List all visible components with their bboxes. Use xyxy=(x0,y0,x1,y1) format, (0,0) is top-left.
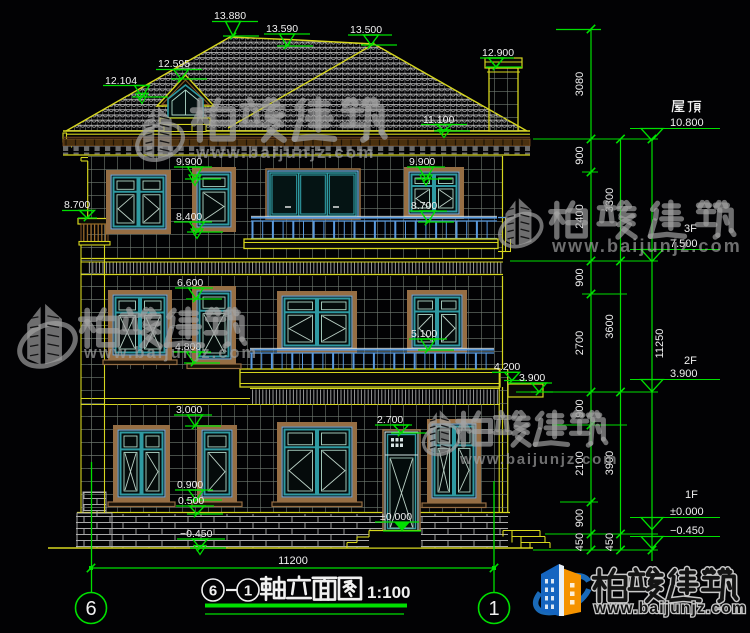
svg-text:5.100: 5.100 xyxy=(411,328,437,340)
svg-text:10.800: 10.800 xyxy=(670,117,704,129)
svg-text:−0.450: −0.450 xyxy=(670,525,704,537)
svg-text:450: 450 xyxy=(604,533,616,551)
svg-text:3.900: 3.900 xyxy=(670,368,698,380)
svg-text:6.600: 6.600 xyxy=(177,277,203,289)
svg-text:900: 900 xyxy=(574,509,586,527)
svg-text:13.590: 13.590 xyxy=(266,23,298,35)
svg-text:6: 6 xyxy=(85,598,96,620)
svg-text:13.880: 13.880 xyxy=(214,10,246,22)
svg-text:3080: 3080 xyxy=(574,72,586,96)
svg-text:11200: 11200 xyxy=(278,555,308,567)
svg-text:3.000: 3.000 xyxy=(176,404,202,416)
svg-text:12.595: 12.595 xyxy=(158,58,190,70)
svg-text:2.700: 2.700 xyxy=(377,414,403,426)
svg-text:8.700: 8.700 xyxy=(64,199,90,211)
svg-text:3600: 3600 xyxy=(604,314,616,338)
svg-text:1F: 1F xyxy=(685,489,698,501)
svg-text:900: 900 xyxy=(574,146,586,164)
svg-text:3.900: 3.900 xyxy=(519,372,545,384)
svg-text:450: 450 xyxy=(574,533,586,551)
svg-text:www.baijunjz.com: www.baijunjz.com xyxy=(195,143,375,162)
svg-text:1: 1 xyxy=(488,598,499,620)
svg-text:0.500: 0.500 xyxy=(178,495,204,507)
svg-text:1: 1 xyxy=(244,583,252,600)
svg-text:4.200: 4.200 xyxy=(494,361,520,373)
svg-text:±0.000: ±0.000 xyxy=(380,511,412,523)
svg-text:2F: 2F xyxy=(684,355,697,367)
svg-text:8.700: 8.700 xyxy=(411,200,437,212)
svg-text:12.900: 12.900 xyxy=(482,47,514,59)
svg-text:13.500: 13.500 xyxy=(350,24,382,36)
svg-text:11250: 11250 xyxy=(654,329,666,359)
svg-text:±0.000: ±0.000 xyxy=(670,506,704,518)
svg-text:2700: 2700 xyxy=(574,331,586,355)
svg-text:www.baijunjz.com: www.baijunjz.com xyxy=(83,344,258,362)
svg-text:−0.450: −0.450 xyxy=(180,528,213,540)
svg-text:www.baijunjz.com: www.baijunjz.com xyxy=(551,236,742,256)
svg-text:8.400: 8.400 xyxy=(176,211,202,223)
svg-text:6: 6 xyxy=(209,583,217,600)
svg-text:www.baijunjz.com: www.baijunjz.com xyxy=(593,600,747,617)
svg-text:1:100: 1:100 xyxy=(367,583,410,602)
svg-text:900: 900 xyxy=(574,268,586,286)
svg-text:9.900: 9.900 xyxy=(409,156,435,168)
svg-text:0.900: 0.900 xyxy=(177,479,203,491)
svg-text:www.baijunjz.com: www.baijunjz.com xyxy=(459,451,618,468)
